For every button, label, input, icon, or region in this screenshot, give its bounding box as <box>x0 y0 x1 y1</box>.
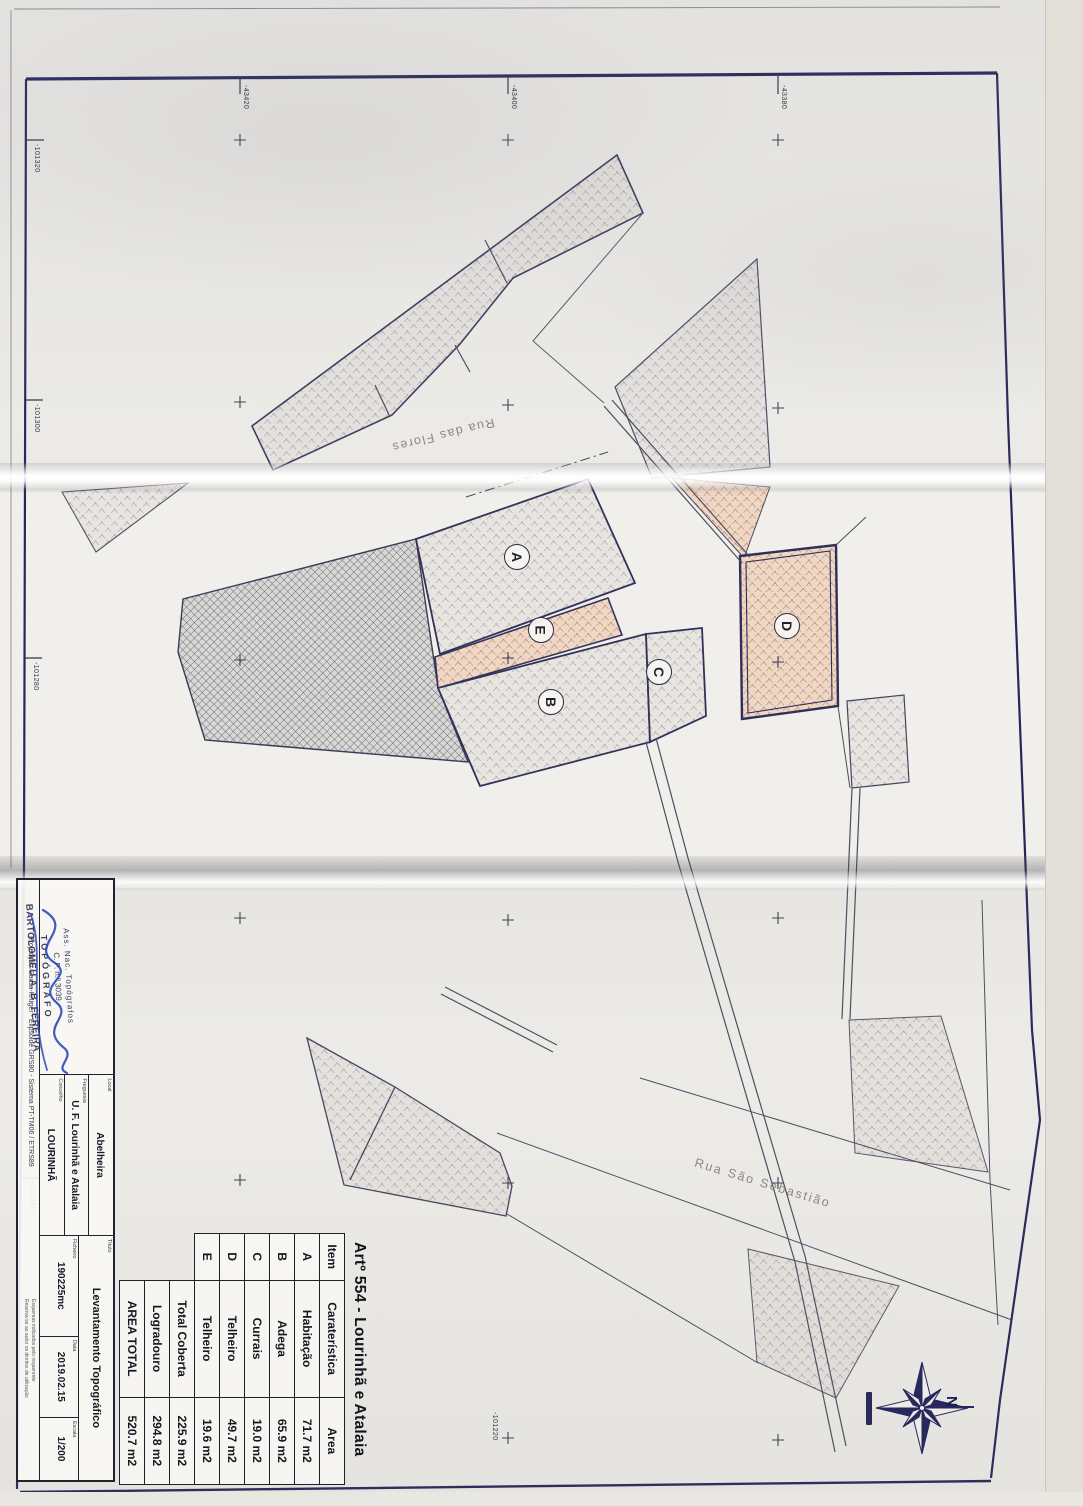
table-row: C Currais 19.0 m2 <box>245 1234 270 1485</box>
northing-tick-label: -43400 <box>510 85 517 109</box>
cell-area: 49.7 m2 <box>220 1397 245 1484</box>
spacer-cell <box>145 1234 170 1281</box>
field-concelho: Concelho LOURINHÃ <box>40 1075 64 1234</box>
table-row: B Adega 65.9 m2 <box>270 1234 295 1485</box>
compass-bar <box>866 1392 872 1425</box>
sheet-title: Artº 554 - Lourinhã e Atalaia <box>352 1242 368 1456</box>
field-label: Data <box>71 1340 77 1352</box>
location-fields: Local Abelheira Freguesia U. F. Lourinhã… <box>40 1075 113 1235</box>
parcel-badge-b: B <box>538 689 564 715</box>
note-line: Reserva-se ao autor os direitos de utili… <box>22 1299 29 1480</box>
easting-tick-label: -101300 <box>33 404 40 433</box>
field-label: Local <box>106 1078 112 1091</box>
table-header-row: Item Caraterística Area <box>320 1234 345 1485</box>
field-freguesia: Freguesia U. F. Lourinhã e Atalaia <box>64 1075 89 1234</box>
field-value: 1/200 <box>55 1418 66 1480</box>
cell-item: D <box>220 1234 245 1281</box>
cell-feature: Telheiro <box>195 1280 220 1397</box>
easting-tick-label: -101280 <box>32 662 39 691</box>
cell-item: B <box>270 1234 295 1281</box>
table-row: A Habitação 71.7 m2 <box>295 1234 320 1485</box>
projection-note: Projecção Gauss-Krüger - Elipsóide GRS80… <box>19 880 39 1291</box>
easting-tick-label: -101220 <box>491 1412 498 1441</box>
parcel-letter: A <box>510 552 524 562</box>
header-area: Area <box>320 1397 345 1484</box>
northing-tick-label: -43380 <box>780 85 787 109</box>
cell-item: C <box>245 1234 270 1281</box>
title-block: Ass. Nac. Topógrafos C. P. n.º 3039 TOPÓ… <box>16 878 115 1482</box>
cell-area: 65.9 m2 <box>270 1397 295 1484</box>
table-total-row: Total Coberta 225.9 m2 <box>170 1234 195 1485</box>
parcel-badge-a: A <box>504 544 530 570</box>
field-ficheiro: Ficheiro 190225mc <box>40 1236 78 1337</box>
fine-print-notes: Esquemas indicados pelo requerente Reser… <box>19 1291 39 1480</box>
total-area: 520.7 m2 <box>120 1397 145 1484</box>
parcel-letter: D <box>780 621 794 631</box>
parcel-badge-e: E <box>528 617 554 643</box>
north-strip-parcel <box>252 155 643 470</box>
cell-feature: Habitação <box>295 1280 320 1397</box>
compass-north-label: N <box>943 1396 960 1407</box>
header-feature: Caraterística <box>320 1280 345 1397</box>
spacer-cell <box>120 1234 145 1281</box>
total-label: Logradouro <box>145 1280 170 1397</box>
field-value: 190225mc <box>55 1236 66 1336</box>
field-label: Escala <box>71 1421 77 1438</box>
cell-area: 19.0 m2 <box>245 1397 270 1484</box>
east-small-parcel <box>847 695 909 788</box>
building-c <box>646 628 706 742</box>
field-local: Local Abelheira <box>88 1075 113 1234</box>
total-area: 225.9 m2 <box>170 1397 195 1484</box>
field-titulo: Título Levantamento Topográfico <box>78 1236 113 1480</box>
table-total-row: Logradouro 294.8 m2 <box>145 1234 170 1485</box>
field-label: Título <box>106 1239 112 1253</box>
note-line: Esquemas indicados pelo requerente <box>29 1299 36 1480</box>
field-value: Levantamento Topográfico <box>90 1236 102 1480</box>
total-label: Total Coberta <box>170 1280 195 1397</box>
field-label: Ficheiro <box>71 1239 77 1259</box>
table-row: D Telheiro 49.7 m2 <box>220 1234 245 1485</box>
table-row: E Telheiro 19.6 m2 <box>195 1234 220 1485</box>
northing-tick-label: -43420 <box>242 85 249 109</box>
cell-feature: Currais <box>245 1280 270 1397</box>
cell-area: 19.6 m2 <box>195 1397 220 1484</box>
hatched-parcels <box>62 155 988 1398</box>
field-value: 2019.02.15 <box>55 1337 66 1417</box>
total-area: 294.8 m2 <box>145 1397 170 1484</box>
spacer-cell <box>170 1234 195 1281</box>
title-block-main-row: Ass. Nac. Topógrafos C. P. n.º 3039 TOPÓ… <box>39 880 113 1480</box>
west-sliver-parcel <box>62 483 188 552</box>
table-total-row: AREA TOTAL 520.7 m2 <box>120 1234 145 1485</box>
field-label: Freguesia <box>81 1078 87 1102</box>
parcel-letter: B <box>544 697 558 707</box>
cell-area: 71.7 m2 <box>295 1397 320 1484</box>
field-value: LOURINHÃ <box>45 1075 56 1234</box>
easting-tick-label: -101320 <box>33 144 40 173</box>
parcel-letter: E <box>534 625 548 634</box>
south-triangle-parcel <box>748 1249 899 1398</box>
parcel-badge-c: C <box>646 659 672 685</box>
south-west-parcel <box>307 1038 512 1216</box>
field-data: Data 2019.02.15 <box>40 1337 78 1418</box>
cell-item: E <box>195 1234 220 1281</box>
field-escala: Escala 1/200 <box>40 1418 78 1480</box>
areas-table: Item Caraterística Area A Habitação 71.7… <box>119 1233 345 1485</box>
header-item: Item <box>320 1234 345 1281</box>
parcel-d-tip <box>672 478 770 558</box>
parcel-letter: C <box>652 667 666 677</box>
surveyor-stamp-cell: Ass. Nac. Topógrafos C. P. n.º 3039 TOPÓ… <box>40 880 113 1075</box>
cell-item: A <box>295 1234 320 1281</box>
title-block-footer-row: Projecção Gauss-Krüger - Elipsóide GRS80… <box>19 880 39 1480</box>
field-label: Concelho <box>57 1078 63 1101</box>
document-fields: Título Levantamento Topográfico Ficheiro… <box>40 1236 113 1480</box>
south-east-parcel <box>849 1016 988 1172</box>
field-value: Abelheira <box>94 1075 105 1234</box>
total-label: AREA TOTAL <box>120 1280 145 1397</box>
parcel-badge-d: D <box>774 613 800 639</box>
cell-feature: Telheiro <box>220 1280 245 1397</box>
compass-rose <box>866 1362 974 1454</box>
scanned-survey-sheet: -43420 -43400 -43380 -101320 -101300 -10… <box>0 0 1083 1506</box>
cell-feature: Adega <box>270 1280 295 1397</box>
field-value: U. F. Lourinhã e Atalaia <box>69 1075 80 1234</box>
file-date-scale-row: Ficheiro 190225mc Data 2019.02.15 Escala… <box>40 1236 78 1480</box>
